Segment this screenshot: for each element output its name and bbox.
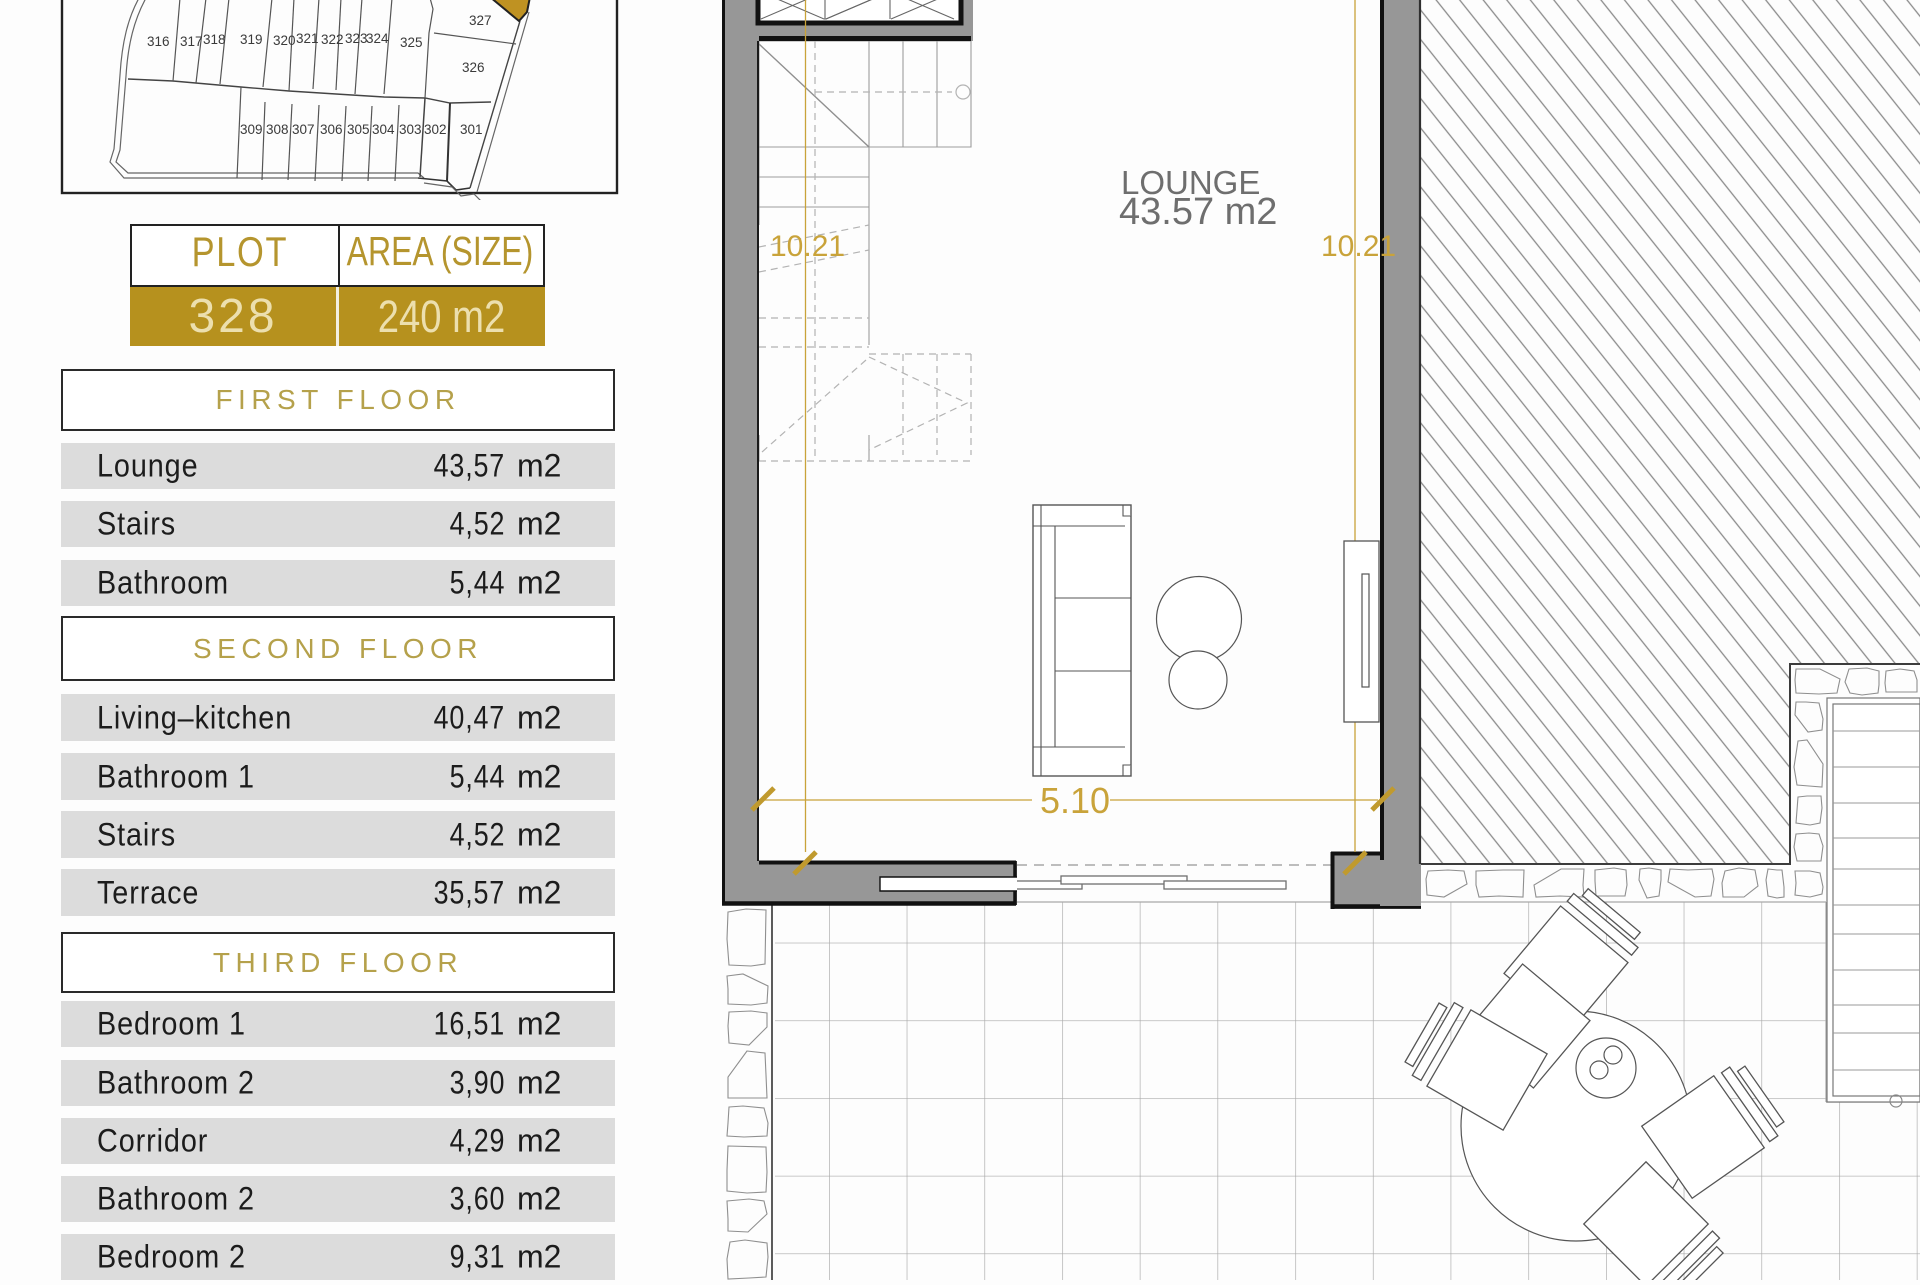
svg-text:325: 325 [400,35,423,50]
svg-text:306: 306 [320,122,343,137]
svg-text:10.21: 10.21 [1321,230,1396,263]
svg-text:10.21: 10.21 [770,230,845,263]
svg-text:301: 301 [460,122,483,137]
svg-text:322: 322 [321,32,344,47]
svg-text:5.10: 5.10 [1040,780,1110,821]
svg-text:319: 319 [240,32,263,47]
svg-text:318: 318 [203,32,226,47]
svg-text:324: 324 [366,31,389,46]
svg-text:317: 317 [180,34,203,49]
svg-text:308: 308 [266,122,289,137]
svg-text:323: 323 [345,31,368,46]
svg-text:321: 321 [296,31,319,46]
svg-text:316: 316 [147,34,170,49]
svg-text:305: 305 [347,122,370,137]
svg-text:327: 327 [469,13,492,28]
svg-text:320: 320 [273,33,296,48]
svg-text:304: 304 [372,122,395,137]
svg-text:303: 303 [399,122,422,137]
svg-text:302: 302 [424,122,447,137]
svg-text:326: 326 [462,60,485,75]
svg-text:307: 307 [292,122,315,137]
svg-text:43.57 m2: 43.57 m2 [1119,191,1277,233]
svg-text:309: 309 [240,122,263,137]
